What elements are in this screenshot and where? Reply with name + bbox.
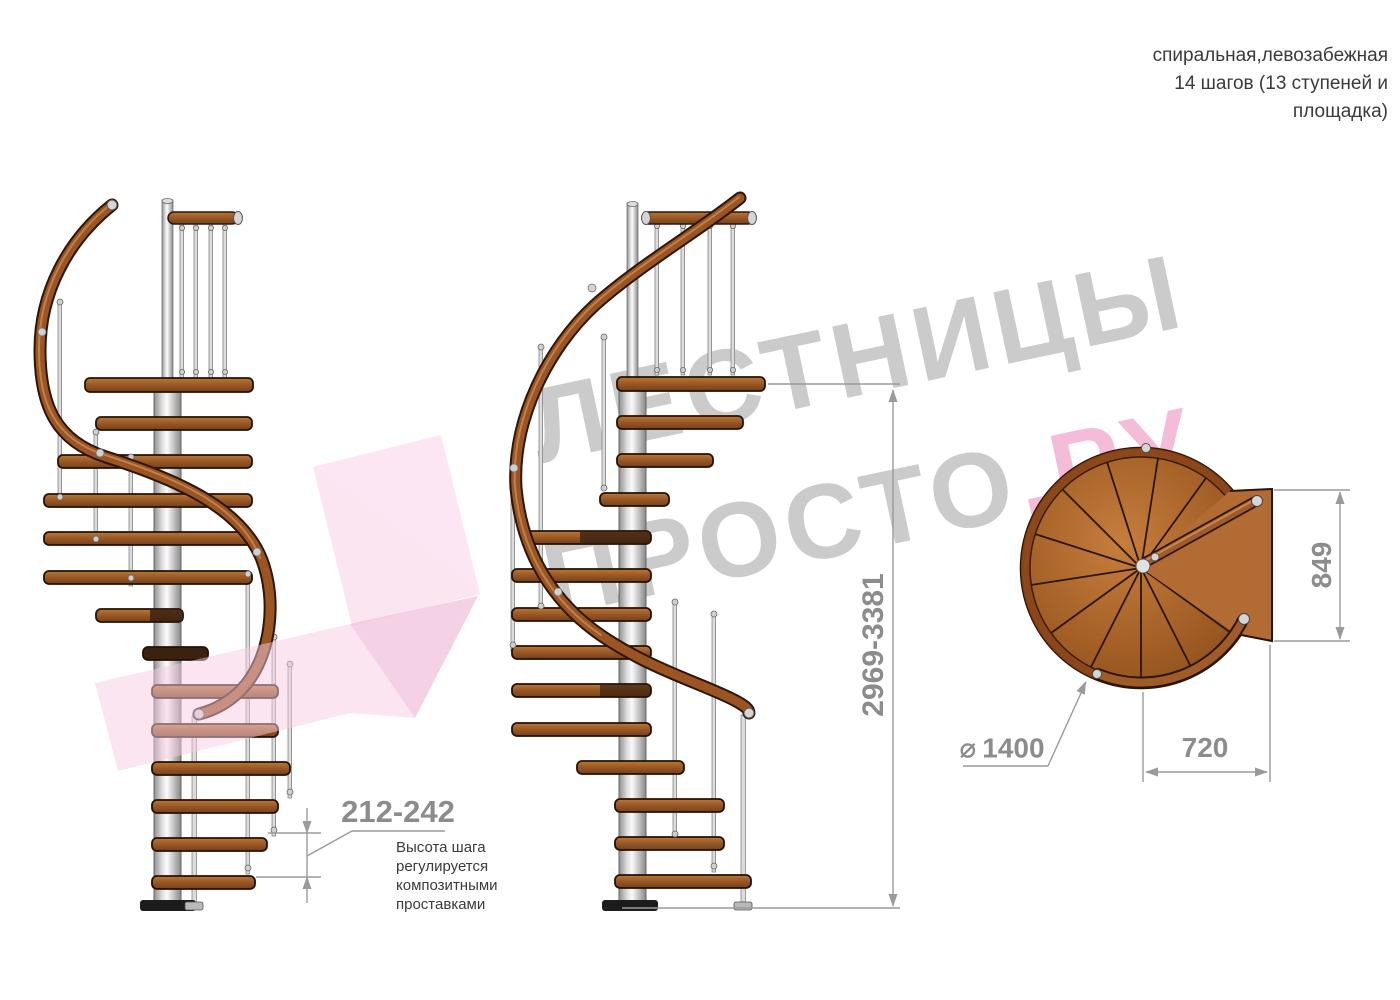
title-line: спиральная,левозабежная: [1153, 42, 1388, 70]
drawing-title: спиральная,левозабежная 14 шагов (13 сту…: [1153, 42, 1388, 126]
platform-railing: [168, 212, 243, 225]
side-view-center: [510, 197, 765, 911]
note-line: Высота шага: [396, 838, 498, 857]
diameter-symbol-icon: ⌀: [959, 732, 976, 765]
dim-platform-width: 720: [1182, 732, 1229, 764]
dim-platform-length: 849: [1306, 542, 1338, 589]
step-height-note: Высота шага регулируется композитными пр…: [396, 838, 498, 914]
side-view-left: [38, 199, 293, 912]
title-line: площадка): [1153, 98, 1388, 126]
drawing-sheet: ЛЕСТНИЦЫ ПРОСТО.РУ: [0, 0, 1400, 1000]
note-line: проставками: [396, 895, 498, 914]
top-view: [1021, 444, 1272, 689]
logo-arrow-watermark: [95, 435, 480, 771]
title-line: 14 шагов (13 ступеней и: [1153, 70, 1388, 98]
note-line: композитными: [396, 876, 498, 895]
diameter-value: 1400: [982, 733, 1044, 764]
dim-overall-height: 2969-3381: [857, 573, 891, 716]
note-line: регулируется: [396, 857, 498, 876]
dim-step-height: 212-242: [341, 794, 455, 830]
pole-base: [602, 900, 658, 911]
dim-diameter: ⌀1400: [959, 732, 1044, 765]
staircase-drawing: [0, 0, 1400, 1000]
